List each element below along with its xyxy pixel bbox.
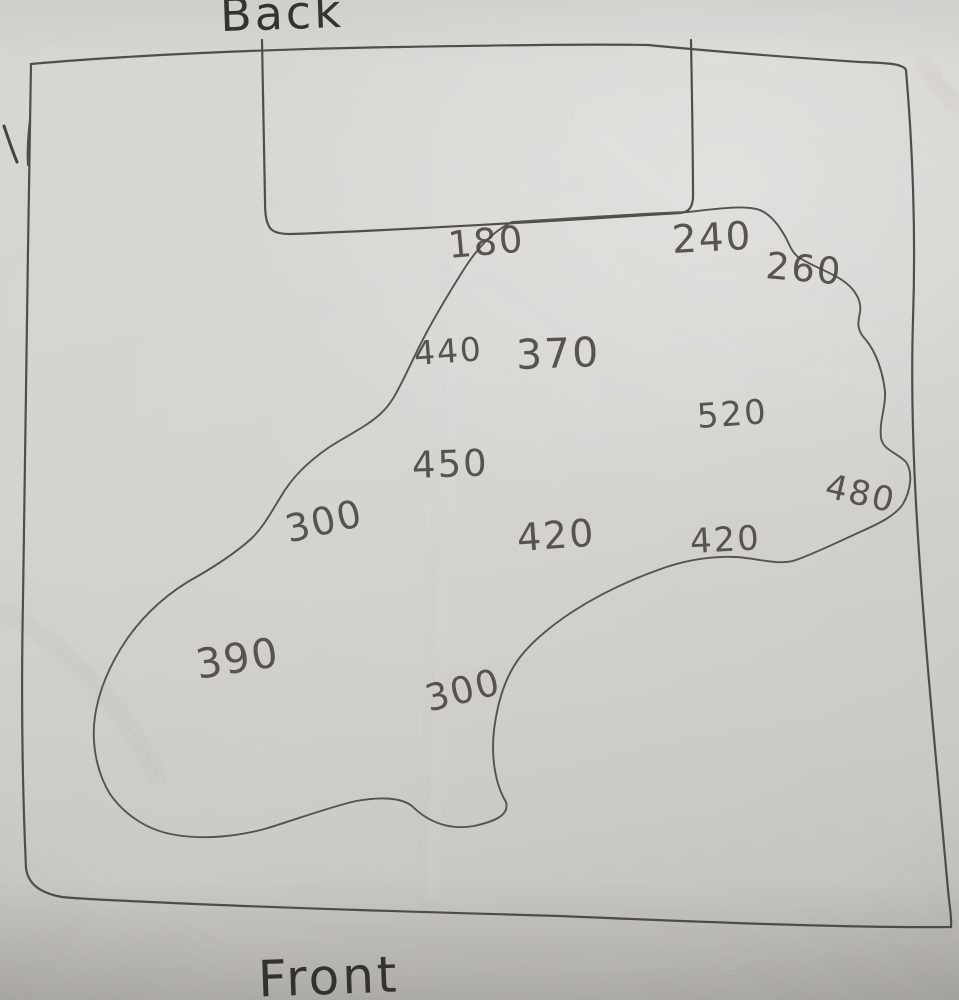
stray-mark (4, 126, 17, 162)
boundary-outline (22, 45, 951, 928)
notch-outline (262, 40, 693, 234)
depth-reading: 180 (446, 217, 526, 267)
photo-of-sketch: Back Front 18024026044037052045048030042… (0, 0, 959, 1000)
depth-reading: 260 (764, 244, 844, 294)
front-label: Front (257, 946, 400, 1000)
depth-reading: 240 (671, 214, 754, 263)
depth-reading: 520 (696, 392, 770, 437)
sketch-drawing (0, 0, 959, 1000)
depth-reading: 420 (689, 518, 762, 562)
depth-reading: 450 (411, 441, 489, 487)
back-label: Back (219, 0, 344, 42)
depth-reading: 440 (413, 329, 485, 373)
depth-reading: 420 (515, 511, 596, 560)
depth-reading: 370 (515, 328, 601, 379)
pond-outline (94, 207, 911, 837)
